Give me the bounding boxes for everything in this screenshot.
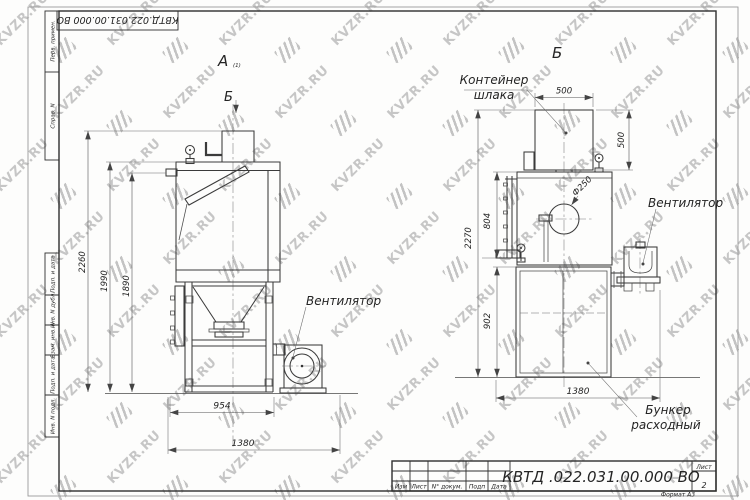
side-label-inv-podl: Инв. N подл. bbox=[51, 398, 57, 435]
drawing-sheet: KVZR.RUKVZR.RUKVZR.RUKVZR.RUKVZR.RUKVZR.… bbox=[0, 0, 750, 500]
side-label-sprav: Справ. N bbox=[51, 103, 57, 128]
frame-gussets bbox=[186, 296, 272, 386]
side-label-perv: Перв. примен. bbox=[51, 20, 57, 62]
sheet-label: Лист bbox=[695, 464, 712, 471]
hopper-label-2: расходный bbox=[630, 418, 701, 432]
view-a-dimensions: 2260 1990 1890 954 1380 bbox=[78, 131, 340, 454]
hinge-stop bbox=[166, 169, 177, 176]
dim-1990: 1990 bbox=[100, 270, 110, 292]
side-label-vzam: Взам. инв. N bbox=[51, 322, 57, 358]
format-label: Формат А3 bbox=[661, 492, 695, 499]
level-pipe bbox=[539, 215, 552, 262]
drawing-svg: КВТД.022.031.00.000 ВО Перв. примен. Спр… bbox=[0, 0, 750, 500]
rev-label-podp: Подп bbox=[469, 484, 485, 491]
fan-leader-dot-a bbox=[292, 357, 295, 360]
hopper-funnel bbox=[193, 287, 264, 337]
view-a: А (1) Б bbox=[78, 52, 381, 454]
rev-label-docnum: N° докум. bbox=[432, 484, 463, 491]
fan-label-a: Вентилятор bbox=[306, 294, 381, 308]
hopper-label-1: Бункер bbox=[645, 403, 691, 417]
fan-leader-b bbox=[643, 209, 656, 263]
top-valve-a bbox=[186, 146, 195, 164]
dim-2270: 2270 bbox=[464, 227, 474, 249]
fan-label-b: Вентилятор bbox=[648, 196, 723, 210]
view-b-label: Б bbox=[552, 44, 562, 62]
body-b bbox=[517, 172, 612, 265]
view-a-label: А bbox=[217, 52, 228, 70]
access-door bbox=[171, 286, 185, 346]
side-label-podp2: Подп. и дата bbox=[51, 356, 57, 394]
top-stamp-doc-number: КВТД.022.031.00.000 ВО bbox=[56, 14, 179, 25]
view-a-label-sub: (1) bbox=[233, 63, 241, 69]
sheet-number: 2 bbox=[701, 481, 706, 490]
bunker bbox=[516, 267, 611, 377]
hopper-leader bbox=[588, 363, 637, 417]
inner-frame bbox=[59, 11, 716, 491]
dim-1380-a: 1380 bbox=[232, 439, 255, 449]
view-b-dimensions: 500 500 2270 804 902 1380 Ф250 bbox=[464, 87, 660, 403]
dim-2260: 2260 bbox=[78, 251, 88, 273]
lower-valve-b bbox=[517, 244, 525, 262]
ladder bbox=[496, 176, 520, 258]
fan-leader-dot-b bbox=[642, 263, 645, 266]
container-leader-dot bbox=[565, 132, 568, 135]
fan-a bbox=[273, 344, 326, 393]
title-block: Изм Лист N° докум. Подп Дата КВТД .022.0… bbox=[392, 461, 716, 499]
hatch-rod bbox=[179, 204, 187, 240]
top-valve-b bbox=[595, 154, 603, 172]
rev-label-list: Лист bbox=[410, 484, 427, 491]
dim-1380-b: 1380 bbox=[567, 387, 590, 397]
view-a-section-mark: Б bbox=[224, 90, 233, 105]
dim-954: 954 bbox=[213, 402, 230, 412]
view-b: Б bbox=[455, 44, 723, 432]
title-doc-number: КВТД .022.031.00.000 ВО bbox=[502, 468, 700, 486]
hopper-leader-dot bbox=[587, 362, 590, 365]
hatch-lid bbox=[185, 166, 249, 205]
dim-500-w: 500 bbox=[556, 87, 572, 97]
fan-leader-a bbox=[293, 307, 306, 357]
container-label-1: Контейнер bbox=[460, 73, 529, 87]
dim-1890: 1890 bbox=[122, 275, 132, 297]
rev-label-izm: Изм bbox=[395, 484, 408, 491]
side-label-podp1: Подп. и дата bbox=[51, 255, 57, 293]
pipe-bracket bbox=[206, 142, 222, 155]
dim-902: 902 bbox=[483, 313, 493, 329]
dim-804: 804 bbox=[483, 213, 493, 229]
container-stub bbox=[524, 152, 534, 170]
dim-500-h: 500 bbox=[617, 132, 627, 148]
fan-b bbox=[611, 242, 660, 291]
